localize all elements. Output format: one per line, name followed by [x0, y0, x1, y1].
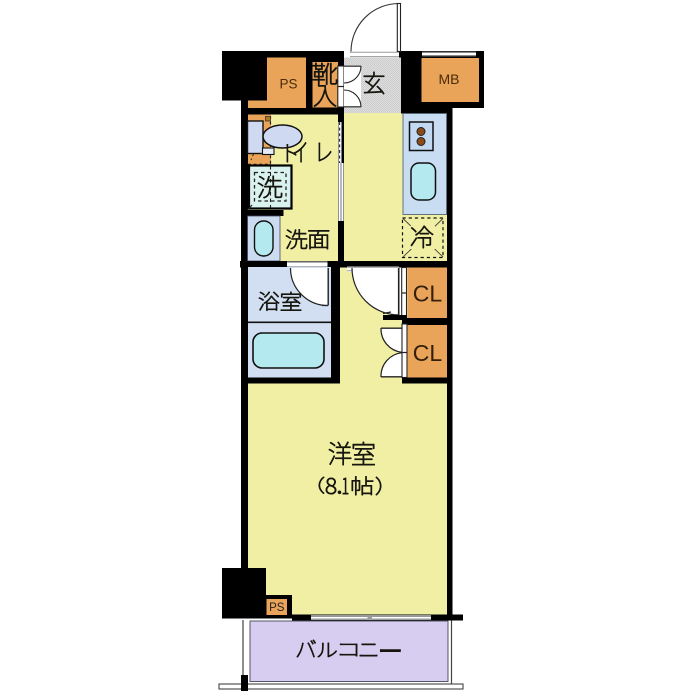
- svg-text:PS: PS: [279, 77, 297, 92]
- svg-text:PS: PS: [269, 602, 285, 614]
- svg-text:MB: MB: [439, 71, 460, 87]
- svg-text:CL: CL: [413, 281, 443, 307]
- svg-text:CL: CL: [413, 340, 443, 366]
